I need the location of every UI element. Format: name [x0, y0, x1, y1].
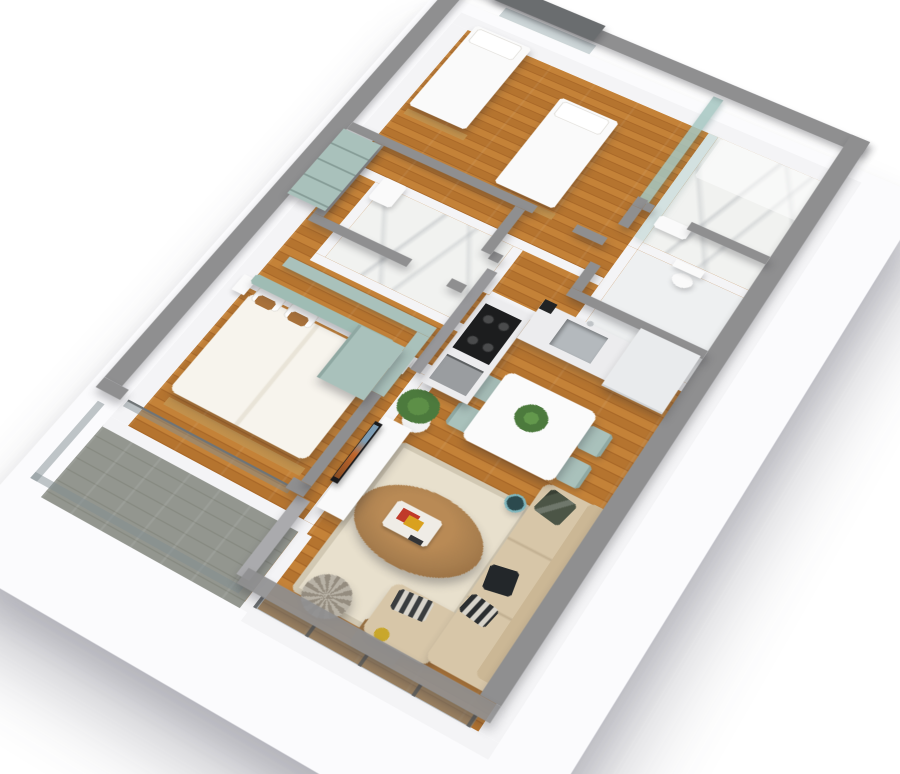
floor-plan-stage [0, 0, 900, 774]
floor-plan-scene [34, 12, 862, 759]
